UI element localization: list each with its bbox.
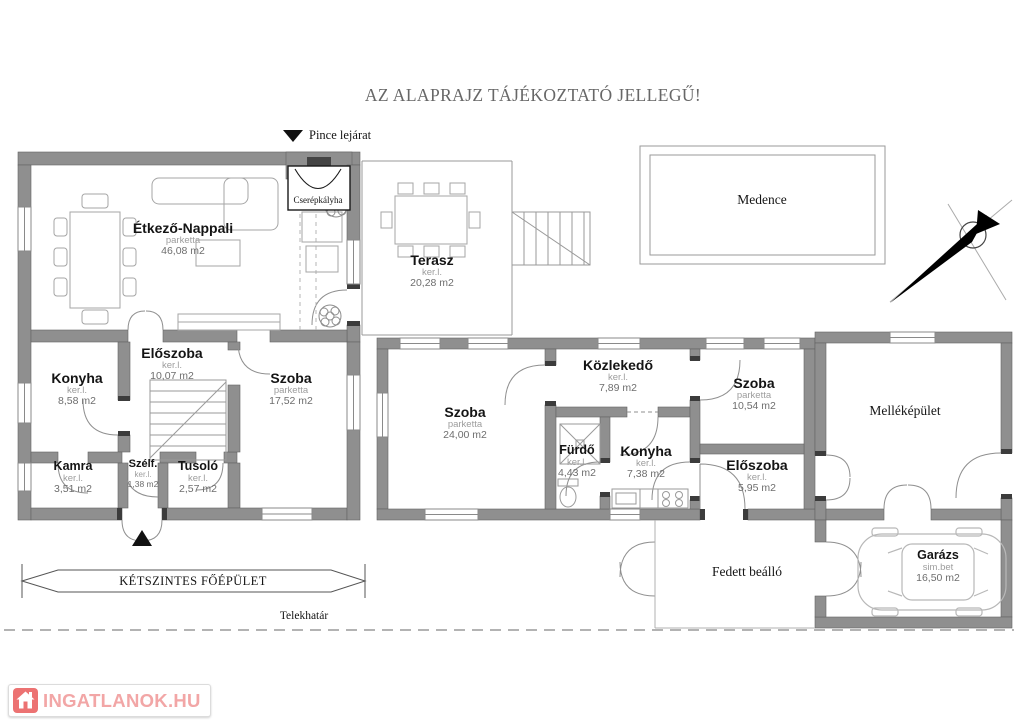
plan-disclaimer-title: AZ ALAPRAJZ TÁJÉKOZTATÓ JELLEGŰ!: [365, 85, 701, 106]
floorplan-page: AZ ALAPRAJZ TÁJÉKOZTATÓ JELLEGŰ! Pince l…: [0, 0, 1024, 724]
room-area: 20,28 m2: [410, 278, 454, 289]
ingatlanok-logo: INGATLANOK.HU: [8, 684, 211, 717]
carport-label: Fedett beálló: [712, 564, 782, 580]
staircase: [150, 380, 226, 460]
room-area: 1,38 m2: [128, 480, 159, 489]
terrace-outline: [362, 161, 590, 335]
room-label-szoba-fo: Szoba parketta 17,52 m2: [269, 371, 313, 408]
room-name: Konyha: [620, 444, 671, 459]
basement-entrance-label: Pince lejárat: [283, 128, 371, 143]
room-name: Előszoba: [141, 346, 202, 361]
pool-label: Medence: [737, 192, 786, 208]
door-arcs: [58, 214, 1001, 596]
north-arrow-icon: [890, 200, 1012, 303]
room-area: 7,38 m2: [620, 469, 671, 480]
room-label-kamra: Kamra ker.l. 3,51 m2: [54, 460, 93, 495]
room-name: Szoba: [732, 376, 776, 391]
room-label-szoba-jobb: Szoba parketta 10,54 m2: [732, 376, 776, 413]
logo-text: INGATLANOK.HU: [43, 690, 201, 712]
basement-arrow-icon: [283, 130, 303, 142]
room-area: 10,07 m2: [141, 371, 202, 382]
room-name: Tusoló: [178, 460, 218, 474]
room-label-eloszoba-fo: Előszoba ker.l. 10,07 m2: [141, 346, 202, 383]
room-name: Kamra: [54, 460, 93, 474]
room-name: Előszoba: [726, 458, 787, 473]
outbuilding-label: Melléképület: [869, 403, 940, 419]
room-area: 16,50 m2: [916, 573, 960, 584]
room-name: Fürdő: [558, 444, 596, 458]
house-icon: [13, 688, 38, 713]
room-area: 7,89 m2: [583, 383, 653, 394]
kitchen-counter: [612, 489, 688, 508]
room-area: 24,00 m2: [443, 430, 487, 441]
room-label-eloszoba-jobb: Előszoba ker.l. 5,95 m2: [726, 458, 787, 495]
dining-table: [54, 194, 136, 324]
room-label-szoba-kozep: Szoba parketta 24,00 m2: [443, 405, 487, 442]
room-area: 46,08 m2: [133, 246, 233, 257]
tile-stove-label: Cserépkályha: [294, 195, 343, 205]
property-boundary-label: Telekhatár: [280, 610, 328, 622]
room-name: Garázs: [916, 549, 960, 563]
terrace-stairs: [512, 212, 590, 265]
room-area: 3,51 m2: [54, 484, 93, 495]
room-area: 10,54 m2: [732, 401, 776, 412]
room-label-konyha-fo: Konyha ker.l. 8,58 m2: [51, 371, 102, 408]
room-name: Szoba: [269, 371, 313, 386]
building-extent-text: KÉTSZINTES FŐÉPÜLET: [119, 574, 267, 589]
door-jambs: [117, 284, 1012, 520]
room-label-kozlekedo: Közlekedő ker.l. 7,89 m2: [583, 358, 653, 395]
room-label-konyha-kozep: Konyha ker.l. 7,38 m2: [620, 444, 671, 481]
terrace-table: [381, 183, 480, 257]
basement-entrance-text: Pince lejárat: [309, 128, 371, 143]
room-area: 2,57 m2: [178, 484, 218, 495]
room-area: 4,43 m2: [558, 468, 596, 479]
room-label-furdo: Fürdő ker.l. 4,43 m2: [558, 444, 596, 479]
room-name: Étkező-Nappali: [133, 221, 233, 236]
room-area: 8,58 m2: [51, 396, 102, 407]
room-area: 17,52 m2: [269, 396, 313, 407]
room-name: Terasz: [410, 253, 454, 268]
room-name: Konyha: [51, 371, 102, 386]
entrance-arrow-icon: [132, 530, 152, 546]
room-area: 5,95 m2: [726, 483, 787, 494]
room-label-tusolo: Tusoló ker.l. 2,57 m2: [178, 460, 218, 495]
room-label-szelfogo: Szélf. ker.l. 1,38 m2: [128, 459, 159, 489]
room-name: Szoba: [443, 405, 487, 420]
room-label-terasz: Terasz ker.l. 20,28 m2: [410, 253, 454, 290]
room-label-etkezo-nappali: Étkező-Nappali parketta 46,08 m2: [133, 221, 233, 258]
room-label-garazs: Garázs sim.bet 16,50 m2: [913, 549, 963, 584]
plant-icon: [319, 305, 341, 327]
room-name: Közlekedő: [583, 358, 653, 373]
